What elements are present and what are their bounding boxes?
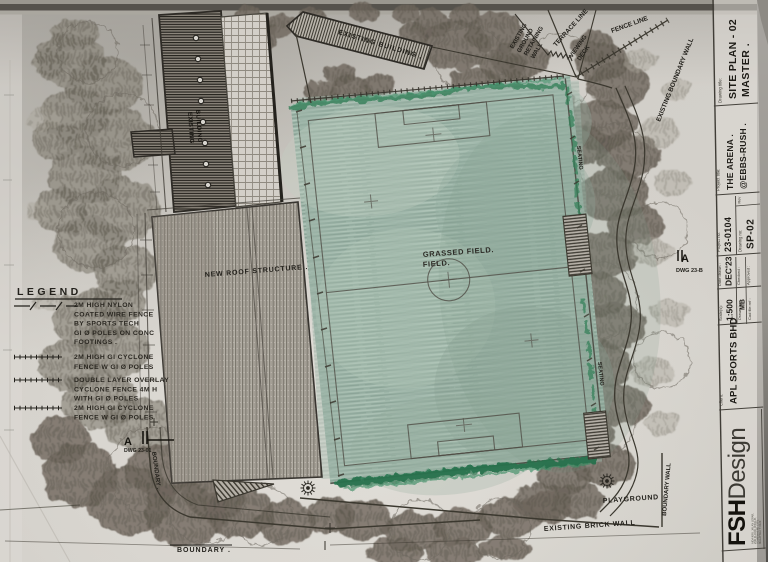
svg-text:Scale(s):: Scale(s): bbox=[718, 305, 723, 321]
svg-text:Rev: Rev bbox=[738, 197, 742, 204]
svg-text:SP-02: SP-02 bbox=[746, 219, 757, 249]
svg-text:2M HIGH NYLON: 2M HIGH NYLON bbox=[74, 302, 133, 309]
svg-text:Project no:: Project no: bbox=[716, 232, 721, 252]
svg-text:SITE PLAN - 02: SITE PLAN - 02 bbox=[727, 19, 739, 99]
svg-text:Project title:: Project title: bbox=[716, 169, 721, 191]
svg-text:CYCLONE FENCE 4M H: CYCLONE FENCE 4M H bbox=[74, 386, 157, 393]
svg-text:BY SPORTS TECH: BY SPORTS TECH bbox=[74, 321, 139, 328]
svg-text:DEC'23: DEC'23 bbox=[724, 256, 734, 286]
svg-text:DOUBLE LAYER OVERLAY: DOUBLE LAYER OVERLAY bbox=[74, 377, 169, 384]
svg-text:MALAYSIA / T: 0123: MALAYSIA / T: 0123 bbox=[758, 520, 762, 544]
svg-text:A: A bbox=[124, 436, 132, 448]
svg-text:DWG 23-B: DWG 23-B bbox=[676, 268, 703, 274]
svg-text:FOOTINGS .: FOOTINGS . bbox=[74, 339, 117, 346]
svg-text:Cad file ref :: Cad file ref : bbox=[747, 298, 752, 320]
svg-text:Client:: Client: bbox=[719, 394, 724, 406]
svg-text:MASTER .: MASTER . bbox=[740, 43, 752, 97]
svg-text:@EBBS-RUSH .: @EBBS-RUSH . bbox=[738, 123, 748, 189]
svg-text:BOUNDARY .: BOUNDARY . bbox=[177, 547, 231, 554]
svg-text:DWG 23-01: DWG 23-01 bbox=[124, 448, 152, 454]
svg-text:FIELD.: FIELD. bbox=[423, 258, 451, 269]
svg-text:APL SPORTS BHD: APL SPORTS BHD bbox=[729, 317, 740, 404]
svg-text:Checked :: Checked : bbox=[736, 267, 741, 285]
svg-text:FENCE W GI Ø POLES: FENCE W GI Ø POLES bbox=[74, 364, 154, 371]
svg-text:Date drawn :: Date drawn : bbox=[717, 263, 722, 286]
svg-text:2M HIGH GI CYCLONE: 2M HIGH GI CYCLONE bbox=[74, 354, 154, 361]
svg-text:Drawing no:: Drawing no: bbox=[738, 230, 743, 252]
svg-text:LEGEND: LEGEND bbox=[17, 286, 82, 298]
svg-text:FSHDesign: FSHDesign bbox=[724, 428, 751, 546]
svg-text:GI Ø POLES ON CONC: GI Ø POLES ON CONC bbox=[74, 330, 154, 337]
svg-text:THE ARENA .: THE ARENA . bbox=[725, 134, 735, 190]
svg-text:Drawing title:: Drawing title: bbox=[718, 78, 723, 103]
svg-text:MB: MB bbox=[740, 299, 747, 310]
svg-text:Approved :: Approved : bbox=[746, 266, 751, 285]
svg-text:COATED WIRE FENCE: COATED WIRE FENCE bbox=[74, 311, 154, 318]
svg-text:FENCE W GI Ø POLES: FENCE W GI Ø POLES bbox=[74, 414, 154, 421]
svg-text:23-0104: 23-0104 bbox=[723, 217, 733, 252]
svg-text:WITH GI Ø POLES: WITH GI Ø POLES bbox=[74, 396, 139, 403]
svg-text:2M HIGH GI CYCLONE: 2M HIGH GI CYCLONE bbox=[74, 405, 154, 412]
